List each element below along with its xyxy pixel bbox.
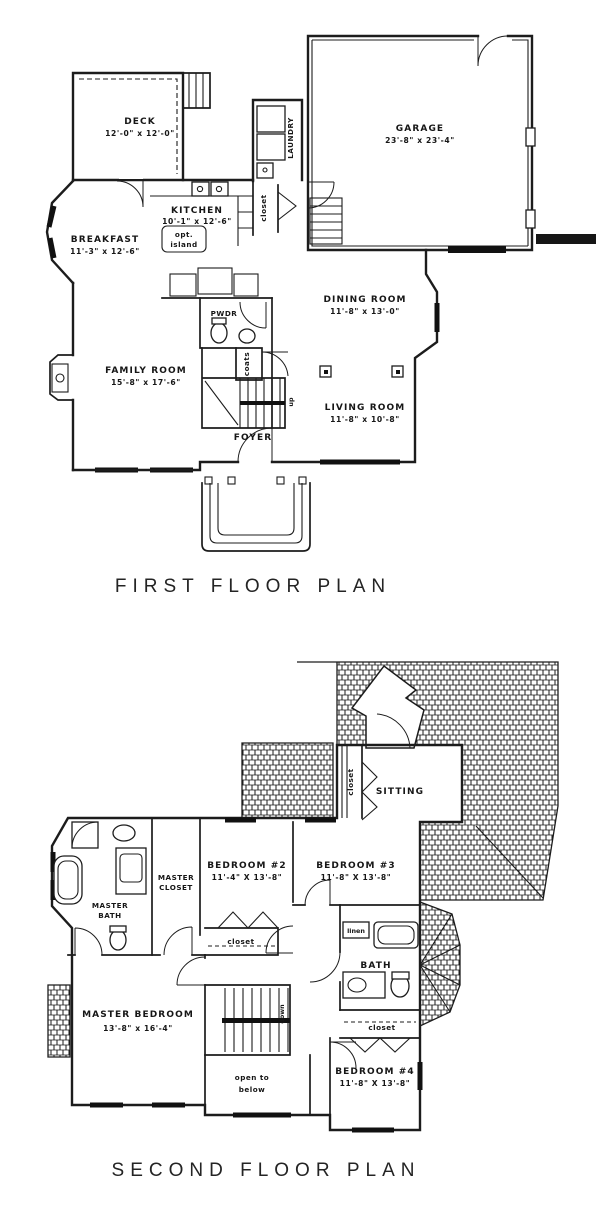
first-floor-title: FIRST FLOOR PLAN (115, 576, 391, 597)
second-floor-plan: SITTING closet BEDROOM #2 11'-4" X 13'-8… (48, 662, 558, 1181)
fireplace (56, 374, 64, 382)
master-closet-label-1: MASTER (158, 873, 194, 882)
front-porch (202, 477, 310, 551)
deck-label: DECK (124, 117, 156, 127)
porch-roof (48, 985, 70, 1057)
master-bath-label-2: BATH (98, 911, 121, 920)
island-label-2: island (170, 240, 197, 249)
deck (73, 73, 253, 180)
bath-closet-label: closet (368, 1023, 395, 1032)
island-label-1: opt. (175, 230, 193, 239)
floor-plan-drawing: DECK 12'-0" x 12'-0" GARAGE 23'-8" x 23'… (0, 0, 600, 1214)
garage-dims: 23'-8" x 23'-4" (385, 136, 455, 145)
dining-dims: 11'-8" x 13'-0" (330, 307, 400, 316)
bath-fixtures (343, 922, 418, 1052)
master-bedroom-label: MASTER BEDROOM (82, 1010, 194, 1020)
bedroom2-closet-label: closet (227, 937, 254, 946)
pwdr-label: PWDR (211, 309, 238, 318)
up-label: up (287, 397, 295, 407)
deck-dims: 12'-0" x 12'-0" (105, 129, 175, 138)
bedroom4-label: BEDROOM #4 (335, 1067, 415, 1077)
floor-plan-sheet: DECK 12'-0" x 12'-0" GARAGE 23'-8" x 23'… (0, 0, 600, 1214)
family-room (50, 283, 193, 470)
breakfast-dims: 11'-3" x 12'-6" (70, 247, 140, 256)
coats-label: coats (242, 352, 251, 376)
bedroom3-dims: 11'-8" X 13'-8" (321, 873, 392, 882)
hall-closet-label: closet (259, 194, 268, 221)
sitting-label: SITTING (376, 787, 424, 797)
turret-roof (420, 902, 460, 1026)
laundry-label: LAUNDRY (286, 117, 295, 159)
columns (320, 366, 403, 377)
bedroom2-closet (205, 912, 278, 955)
open-below-label-1: open to (235, 1073, 269, 1082)
bedroom2-dims: 11'-4" X 13'-8" (212, 873, 283, 882)
breakfast-room (47, 181, 73, 283)
master-bath-label-1: MASTER (92, 901, 128, 910)
bath-label: BATH (360, 961, 391, 971)
linen-label: linen (347, 927, 365, 935)
sitting-closet-label: closet (346, 768, 355, 795)
open-below-label-2: below (239, 1085, 266, 1094)
living-label: LIVING ROOM (325, 403, 406, 413)
first-floor-plan: DECK 12'-0" x 12'-0" GARAGE 23'-8" x 23'… (47, 36, 596, 597)
living-dims: 11'-8" x 10'-8" (330, 415, 400, 424)
master-closet-label-2: CLOSET (159, 883, 193, 892)
second-floor-title: SECOND FLOOR PLAN (112, 1160, 421, 1181)
foyer-label: FOYER (234, 433, 273, 443)
kitchen-dims: 10'-1" x 12'-6" (162, 217, 232, 226)
down-label: down (278, 1004, 286, 1024)
breakfast-label: BREAKFAST (71, 235, 139, 245)
bedroom4-dims: 11'-8" X 13'-8" (340, 1079, 411, 1088)
deck-door (117, 177, 143, 207)
kitchen-peninsula (162, 268, 272, 298)
family-dims: 15'-8" x 17'-6" (111, 378, 181, 387)
kitchen-label: KITCHEN (171, 206, 223, 216)
master-bedroom-dims: 13'-8" x 16'-4" (103, 1024, 173, 1033)
bedroom3-label: BEDROOM #3 (316, 861, 396, 871)
dining-label: DINING ROOM (323, 295, 406, 305)
family-label: FAMILY ROOM (105, 366, 187, 376)
garage-label: GARAGE (396, 124, 444, 134)
master-bath-fixtures (54, 822, 146, 950)
bedroom2-label: BEDROOM #2 (207, 861, 287, 871)
